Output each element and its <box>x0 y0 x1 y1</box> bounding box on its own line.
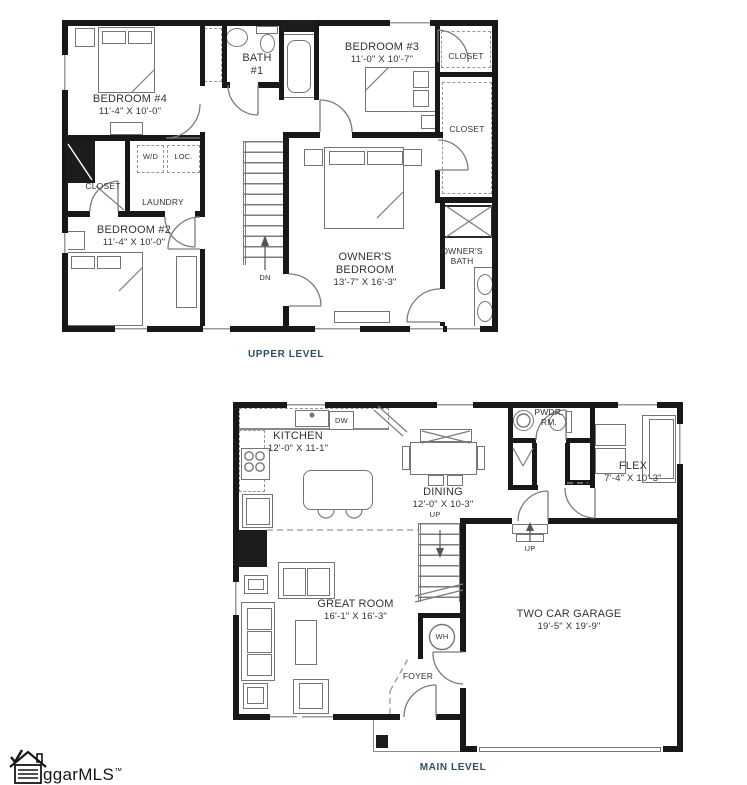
room-label-flex: FLEX 7'-4" X 10'-3" <box>590 460 676 484</box>
wall <box>118 211 165 217</box>
sofa-cushion <box>247 631 272 653</box>
wall <box>233 714 270 720</box>
shower <box>443 205 493 238</box>
nightstand <box>403 149 422 166</box>
stairs-dn-label: DN <box>250 274 280 283</box>
room-name: PWDR. <box>528 407 570 417</box>
room-name: GREAT ROOM <box>293 598 418 611</box>
room-label-closet-left: CLOSET <box>72 181 134 191</box>
refrigerator-inner <box>246 498 270 525</box>
window <box>315 326 360 332</box>
chair <box>595 424 626 446</box>
nightstand <box>75 28 95 47</box>
water-heater-label: WH <box>430 633 454 642</box>
window <box>437 402 473 408</box>
room-name: #1 <box>230 65 284 78</box>
window <box>270 714 297 720</box>
closet-shelving <box>442 82 492 194</box>
room-dims: 7'-4" X 10'-3" <box>590 473 676 484</box>
dining-chair <box>477 446 485 470</box>
wall <box>200 26 205 86</box>
wall <box>460 518 466 652</box>
window <box>302 714 333 720</box>
wall <box>548 518 683 524</box>
armchair-cushion <box>299 683 323 709</box>
room-label-owners-bath: OWNER'S BATH <box>436 246 488 266</box>
wall <box>460 688 466 752</box>
room-name: DINING <box>393 486 493 499</box>
trademark-symbol: ™ <box>114 767 122 776</box>
dining-chair <box>447 475 463 486</box>
room-dims: 13'-7" X 16'-3" <box>302 277 428 288</box>
room-label-great-room: GREAT ROOM 16'-1" X 16'-3" <box>293 598 418 622</box>
bench <box>110 122 143 135</box>
pillow <box>329 151 365 165</box>
sofa-cushion <box>247 654 272 676</box>
mls-logo: ggarMLS™ <box>8 748 122 784</box>
room-name: OWNER'S <box>302 251 428 264</box>
room-dims: 12'-0" X 11-1" <box>238 443 358 454</box>
wall <box>222 26 227 88</box>
main-level-caption: MAIN LEVEL <box>363 762 543 773</box>
fireplace <box>238 530 267 567</box>
stairs-up-label: UP <box>424 511 446 520</box>
dining-chair <box>402 446 410 470</box>
dishwasher-label: DW <box>329 417 354 426</box>
pillow <box>413 90 429 107</box>
loveseat-cushion <box>307 568 330 596</box>
pillow <box>71 256 95 269</box>
pillow <box>413 71 429 88</box>
room-name: OWNER'S <box>436 246 488 256</box>
window <box>677 424 683 464</box>
wall-fill <box>281 20 315 32</box>
room-label-bedroom3: BEDROOM #3 11'-0" X 10'-7" <box>318 41 446 65</box>
garage-step-up-label: UP <box>520 545 540 554</box>
floor-plan-sheet: BEDROOM #4 11'-4" X 10'-0" BATH #1 BEDRO… <box>0 0 747 785</box>
window <box>618 402 657 408</box>
wall <box>283 138 289 274</box>
wall <box>508 485 538 490</box>
room-name: KITCHEN <box>238 430 358 443</box>
window <box>62 55 68 90</box>
loveseat-cushion <box>283 568 306 596</box>
window <box>203 326 230 332</box>
bath-sink <box>226 28 248 47</box>
pillow <box>367 151 403 165</box>
wall <box>508 443 513 490</box>
room-name: BEDROOM <box>302 264 428 277</box>
wall <box>195 211 205 217</box>
room-dims: 11'-0" X 10'-7" <box>318 54 446 65</box>
dining-chair <box>428 475 444 486</box>
room-label-bedroom4: BEDROOM #4 11'-4" X 10'-0" <box>70 93 190 117</box>
wall <box>200 249 205 326</box>
wall <box>508 402 513 443</box>
side-table-inner <box>247 687 264 704</box>
wall <box>532 443 537 490</box>
wall <box>460 518 512 524</box>
window <box>447 326 480 332</box>
nightstand <box>304 149 323 166</box>
room-label-owners-bedroom: OWNER'S BEDROOM 13'-7" X 16'-3" <box>302 251 428 288</box>
wall <box>436 714 460 720</box>
logo-text: ggarMLS™ <box>43 766 122 784</box>
room-label-closet-right: CLOSET <box>439 124 495 134</box>
logo-wordmark: ggarMLS <box>43 765 114 784</box>
wall <box>62 211 90 217</box>
room-name: BEDROOM #3 <box>318 41 446 54</box>
room-dims: 12'-0" X 10-3" <box>393 499 493 510</box>
closet-shelving <box>441 31 491 68</box>
upper-level-floor-plan: BEDROOM #4 11'-4" X 10'-0" BATH #1 BEDRO… <box>62 20 498 332</box>
room-label-garage: TWO CAR GARAGE 19'-5" X 19'-9" <box>503 608 635 632</box>
wall <box>435 72 498 77</box>
room-dims: 11'-4" X 10'-0" <box>70 106 190 117</box>
room-name: BATH <box>230 52 284 65</box>
room-label-bedroom2: BEDROOM #2 11'-4" X 10'-0" <box>80 224 188 248</box>
wall <box>418 613 466 618</box>
kitchen-island <box>303 470 373 510</box>
window <box>287 402 325 408</box>
wall <box>565 480 590 485</box>
toilet-bowl <box>477 301 493 322</box>
pillow <box>128 31 152 44</box>
side-table-inner <box>248 579 264 590</box>
window <box>115 326 147 332</box>
room-label-kitchen: KITCHEN 12'-0" X 11-1" <box>238 430 358 454</box>
upper-level-caption: UPPER LEVEL <box>196 349 376 360</box>
wall <box>492 20 498 332</box>
wall <box>352 132 443 138</box>
garage-stoop-step <box>512 524 548 534</box>
room-label-laundry: LAUNDRY <box>126 197 200 207</box>
room-name: RM. <box>528 417 570 427</box>
garage-door <box>479 747 661 752</box>
wall <box>333 714 400 720</box>
window <box>410 326 443 332</box>
washer-dryer-label: W/D <box>137 153 164 162</box>
room-name: TWO CAR GARAGE <box>503 608 635 621</box>
room-name: BEDROOM #4 <box>70 93 190 106</box>
staircase-up <box>418 523 460 602</box>
dining-table <box>410 442 477 475</box>
wall <box>418 613 423 659</box>
porch-post <box>376 735 388 748</box>
window <box>233 582 239 615</box>
wall <box>435 170 440 197</box>
room-label-bath1: BATH #1 <box>230 52 284 78</box>
dining-bench <box>420 429 472 442</box>
room-label-dining: DINING 12'-0" X 10-3" <box>393 486 493 510</box>
window <box>62 233 68 253</box>
room-label-foyer: FOYER <box>396 671 440 681</box>
wall <box>200 141 205 211</box>
room-name: BATH <box>436 256 488 266</box>
room-label-powder: PWDR. RM. <box>528 407 570 427</box>
room-dims: 16'-1" X 16'-3" <box>293 611 418 622</box>
wall <box>222 82 230 88</box>
bath-sink <box>477 274 493 295</box>
linen-closet <box>204 28 222 82</box>
toilet-bowl <box>260 34 275 53</box>
garage-stoop-step <box>516 534 544 542</box>
wall <box>258 82 281 88</box>
pillow <box>97 256 121 269</box>
room-dims: 19'-5" X 19'-9" <box>503 621 635 632</box>
bathtub-basin <box>287 40 311 93</box>
room-name: FLEX <box>590 460 676 473</box>
kitchen-sink <box>295 410 329 427</box>
main-level-floor-plan: KITCHEN 12'-0" X 11-1" DW DINING 12'-0" … <box>233 402 683 755</box>
toilet-tank <box>256 26 278 34</box>
closet-shelf-unit <box>66 141 95 183</box>
room-name: BEDROOM #2 <box>80 224 188 237</box>
coffee-table <box>295 620 317 665</box>
wall <box>565 443 570 485</box>
room-dims: 11'-4" X 10'-0" <box>80 237 188 248</box>
wall <box>283 306 289 332</box>
pillow <box>102 31 126 44</box>
bench <box>334 311 390 323</box>
room-label-closet-top: CLOSET <box>437 51 495 61</box>
window <box>390 20 430 26</box>
sofa-cushion <box>247 608 272 630</box>
loc-label: LOC. <box>167 153 200 162</box>
dresser <box>176 256 197 308</box>
wall <box>663 746 683 752</box>
